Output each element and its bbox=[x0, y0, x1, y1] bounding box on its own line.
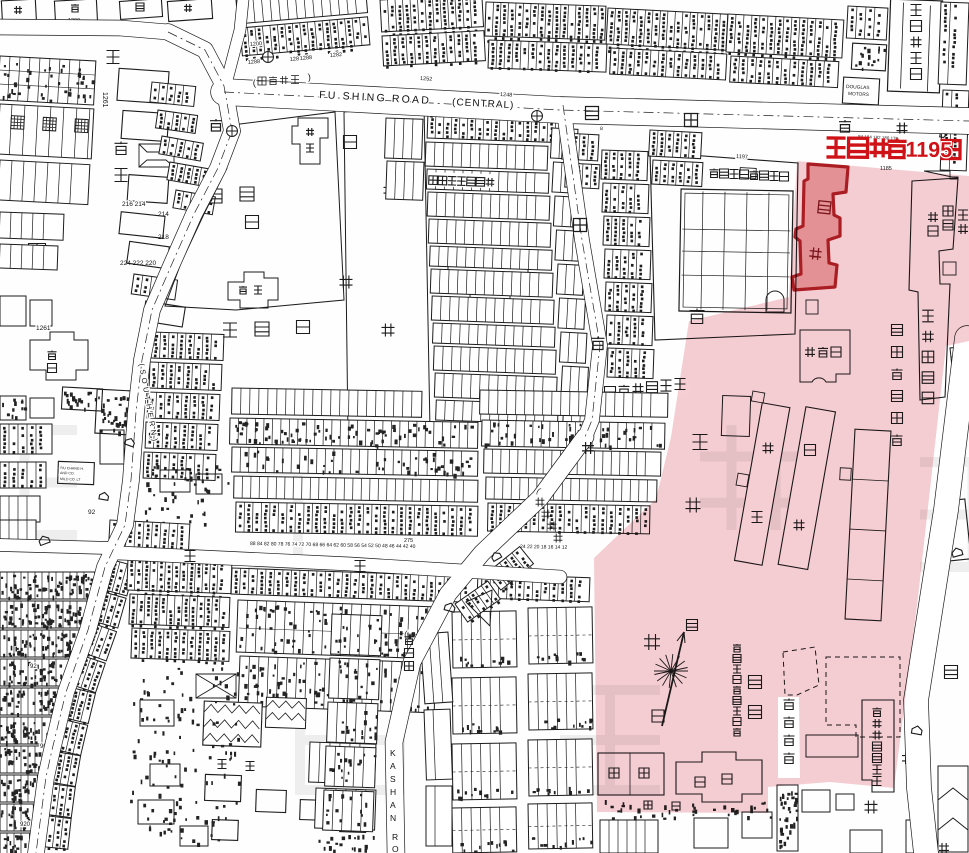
svg-text:1248: 1248 bbox=[500, 92, 513, 99]
svg-text:1288: 1288 bbox=[248, 59, 261, 66]
svg-text:92: 92 bbox=[30, 664, 37, 670]
svg-text:1261: 1261 bbox=[36, 325, 51, 332]
svg-text:1200: 1200 bbox=[250, 41, 263, 48]
svg-text:O: O bbox=[392, 844, 399, 853]
svg-text:8: 8 bbox=[600, 126, 603, 132]
svg-text:1261: 1261 bbox=[101, 92, 108, 108]
svg-text:92: 92 bbox=[88, 509, 96, 516]
svg-text:1252: 1252 bbox=[420, 76, 433, 83]
svg-text:1288: 1288 bbox=[300, 55, 313, 62]
svg-text:S: S bbox=[390, 774, 396, 784]
svg-text:24 22 20 18 16 14 12: 24 22 20 18 16 14 12 bbox=[520, 544, 568, 551]
svg-text:A: A bbox=[390, 761, 396, 771]
svg-text:MOTORS: MOTORS bbox=[848, 91, 869, 98]
svg-text:R: R bbox=[392, 832, 398, 842]
svg-text:1195: 1195 bbox=[905, 138, 952, 162]
svg-text:A: A bbox=[390, 800, 396, 810]
svg-text:1282: 1282 bbox=[330, 52, 343, 59]
svg-text:214: 214 bbox=[158, 211, 169, 218]
svg-text:216 214: 216 214 bbox=[122, 201, 146, 208]
svg-text:MILD CO. LT: MILD CO. LT bbox=[60, 477, 81, 482]
svg-text:H: H bbox=[390, 787, 396, 797]
svg-text:K: K bbox=[390, 748, 396, 758]
svg-text:224 222 220: 224 222 220 bbox=[120, 260, 157, 267]
svg-text:AND CO.: AND CO. bbox=[60, 471, 75, 476]
svg-text:1197: 1197 bbox=[736, 154, 748, 161]
svg-text:920: 920 bbox=[20, 822, 31, 828]
svg-text:N: N bbox=[390, 813, 396, 823]
svg-text:275: 275 bbox=[404, 538, 413, 544]
svg-text:SIU CHANG H.: SIU CHANG H. bbox=[60, 466, 84, 471]
svg-text:DOUGLAS: DOUGLAS bbox=[846, 84, 870, 91]
